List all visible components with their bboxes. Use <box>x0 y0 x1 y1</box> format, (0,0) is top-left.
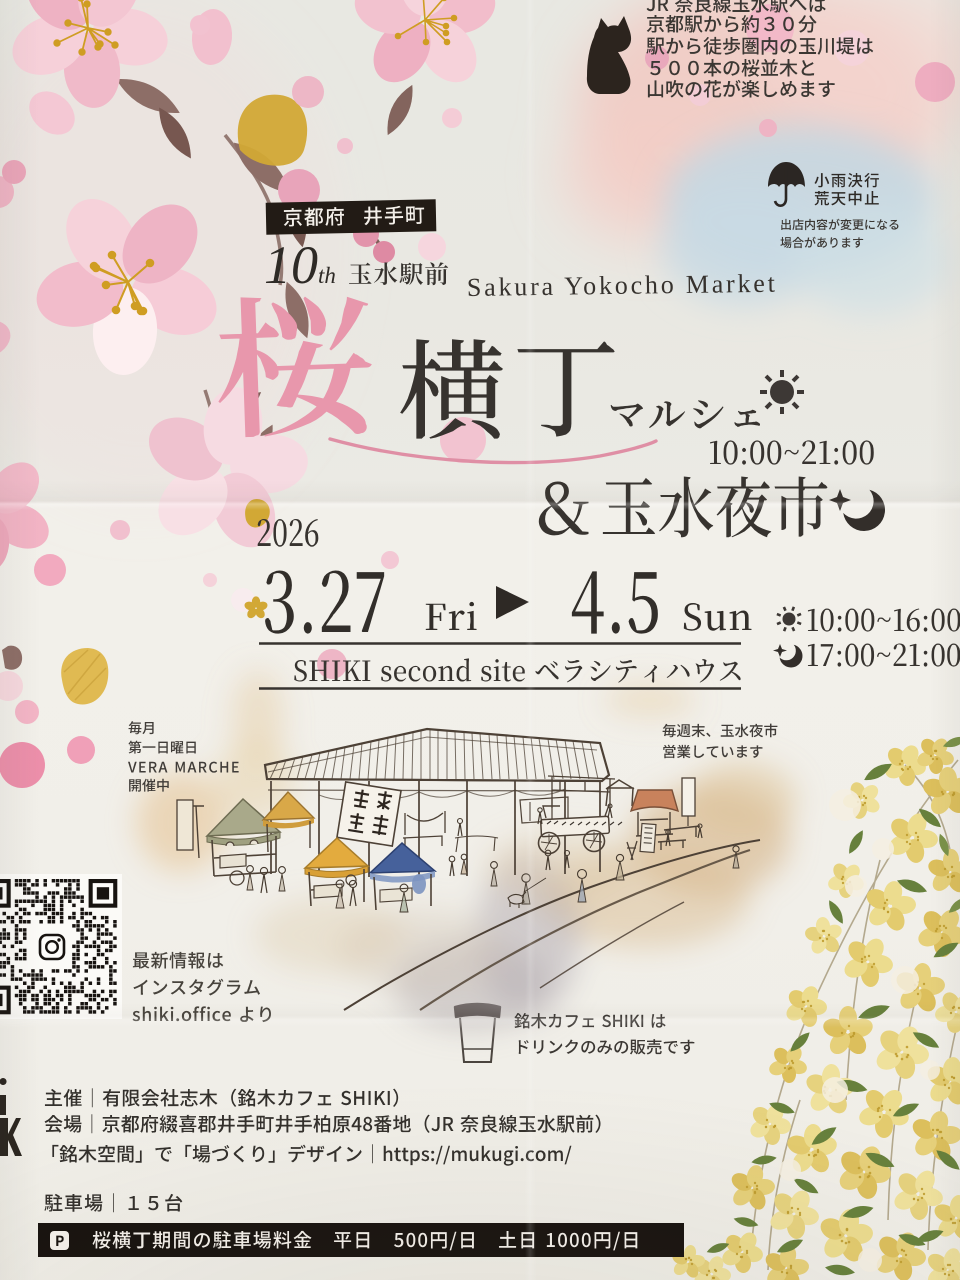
svg-text:Sakura Yokocho Market: Sakura Yokocho Market <box>467 269 778 302</box>
